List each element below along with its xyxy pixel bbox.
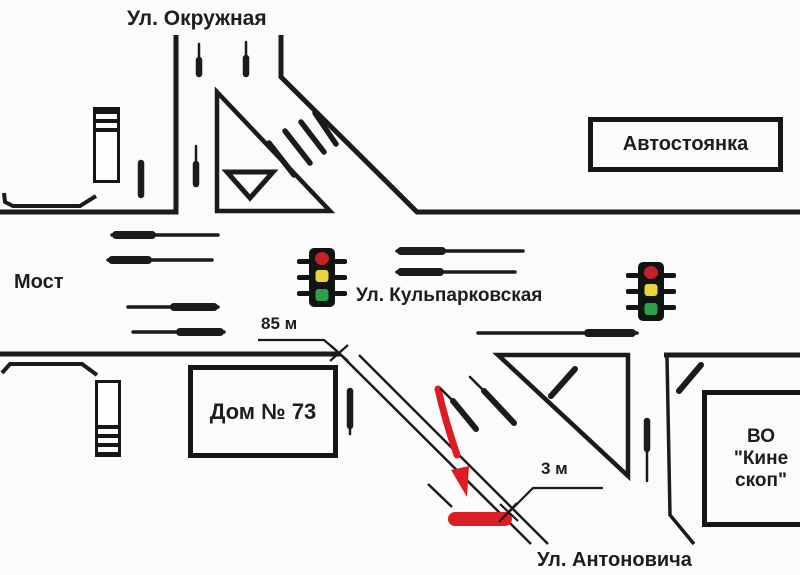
label-most: Мост (14, 271, 64, 294)
yellow-light (316, 270, 329, 282)
street-label-kulparkovskaya: Ул. Кульпарковская (356, 285, 542, 307)
green-light (316, 289, 329, 301)
measure-3m (499, 488, 603, 522)
building-label-avtostoyanka: Автостоянка (623, 133, 748, 156)
red-light (644, 266, 658, 279)
building-box-kineskop: ВО "Кине скоп" (702, 390, 800, 527)
building-label-dom-73: Дом № 73 (210, 399, 317, 425)
antonovicha-dashes (441, 365, 701, 429)
building-box-avtostoyanka: Автостоянка (588, 117, 783, 172)
yellow-light (645, 284, 658, 296)
street-label-okruzhnaya: Ул. Окружная (127, 7, 267, 31)
traffic-island-bottom (498, 355, 628, 476)
hatched-zone-top (93, 107, 120, 183)
traffic-light-bracket (663, 305, 676, 310)
green-light (645, 303, 658, 315)
traffic-light-bracket (663, 273, 676, 278)
building-box-dom-73: Дом № 73 (188, 365, 338, 458)
distance-label-85m: 85 м (261, 314, 297, 334)
traffic-light-body (638, 262, 664, 321)
accident-scheme-canvas: Ул. Окружная Мост Ул. Кульпарковская Ул.… (0, 0, 800, 575)
distance-label-3m: 3 м (541, 459, 568, 479)
traffic-light-bracket (334, 275, 347, 280)
lane-arrows (108, 235, 637, 333)
bus-bay-curb-top (4, 193, 96, 206)
traffic-light-bracket (334, 291, 347, 296)
traffic-light-icon (626, 262, 676, 324)
traffic-light-body (309, 248, 335, 307)
street-label-antonovicha: Ул. Антоновича (537, 549, 692, 572)
hatch-stripes (98, 425, 118, 454)
antonovicha-street-edges (341, 355, 548, 544)
kineskop-line2: "Кине (734, 448, 788, 469)
red-light (315, 252, 329, 265)
bus-bay-curb-bottom (2, 364, 97, 375)
traffic-light-icon (297, 248, 347, 310)
kineskop-line3: скоп" (735, 470, 787, 491)
road-edge-top-left-and-okruzhnaya-west (0, 35, 176, 212)
hatched-zone-bottom (95, 380, 121, 457)
traffic-light-bracket (663, 289, 676, 294)
kineskop-line1: ВО (747, 426, 775, 447)
hatch-stripes (96, 110, 117, 137)
give-way-triangle-icon (227, 172, 273, 198)
measure-85m (258, 340, 348, 361)
building-label-kineskop: ВО "Кине скоп" (734, 426, 788, 492)
traffic-light-bracket (334, 259, 347, 264)
